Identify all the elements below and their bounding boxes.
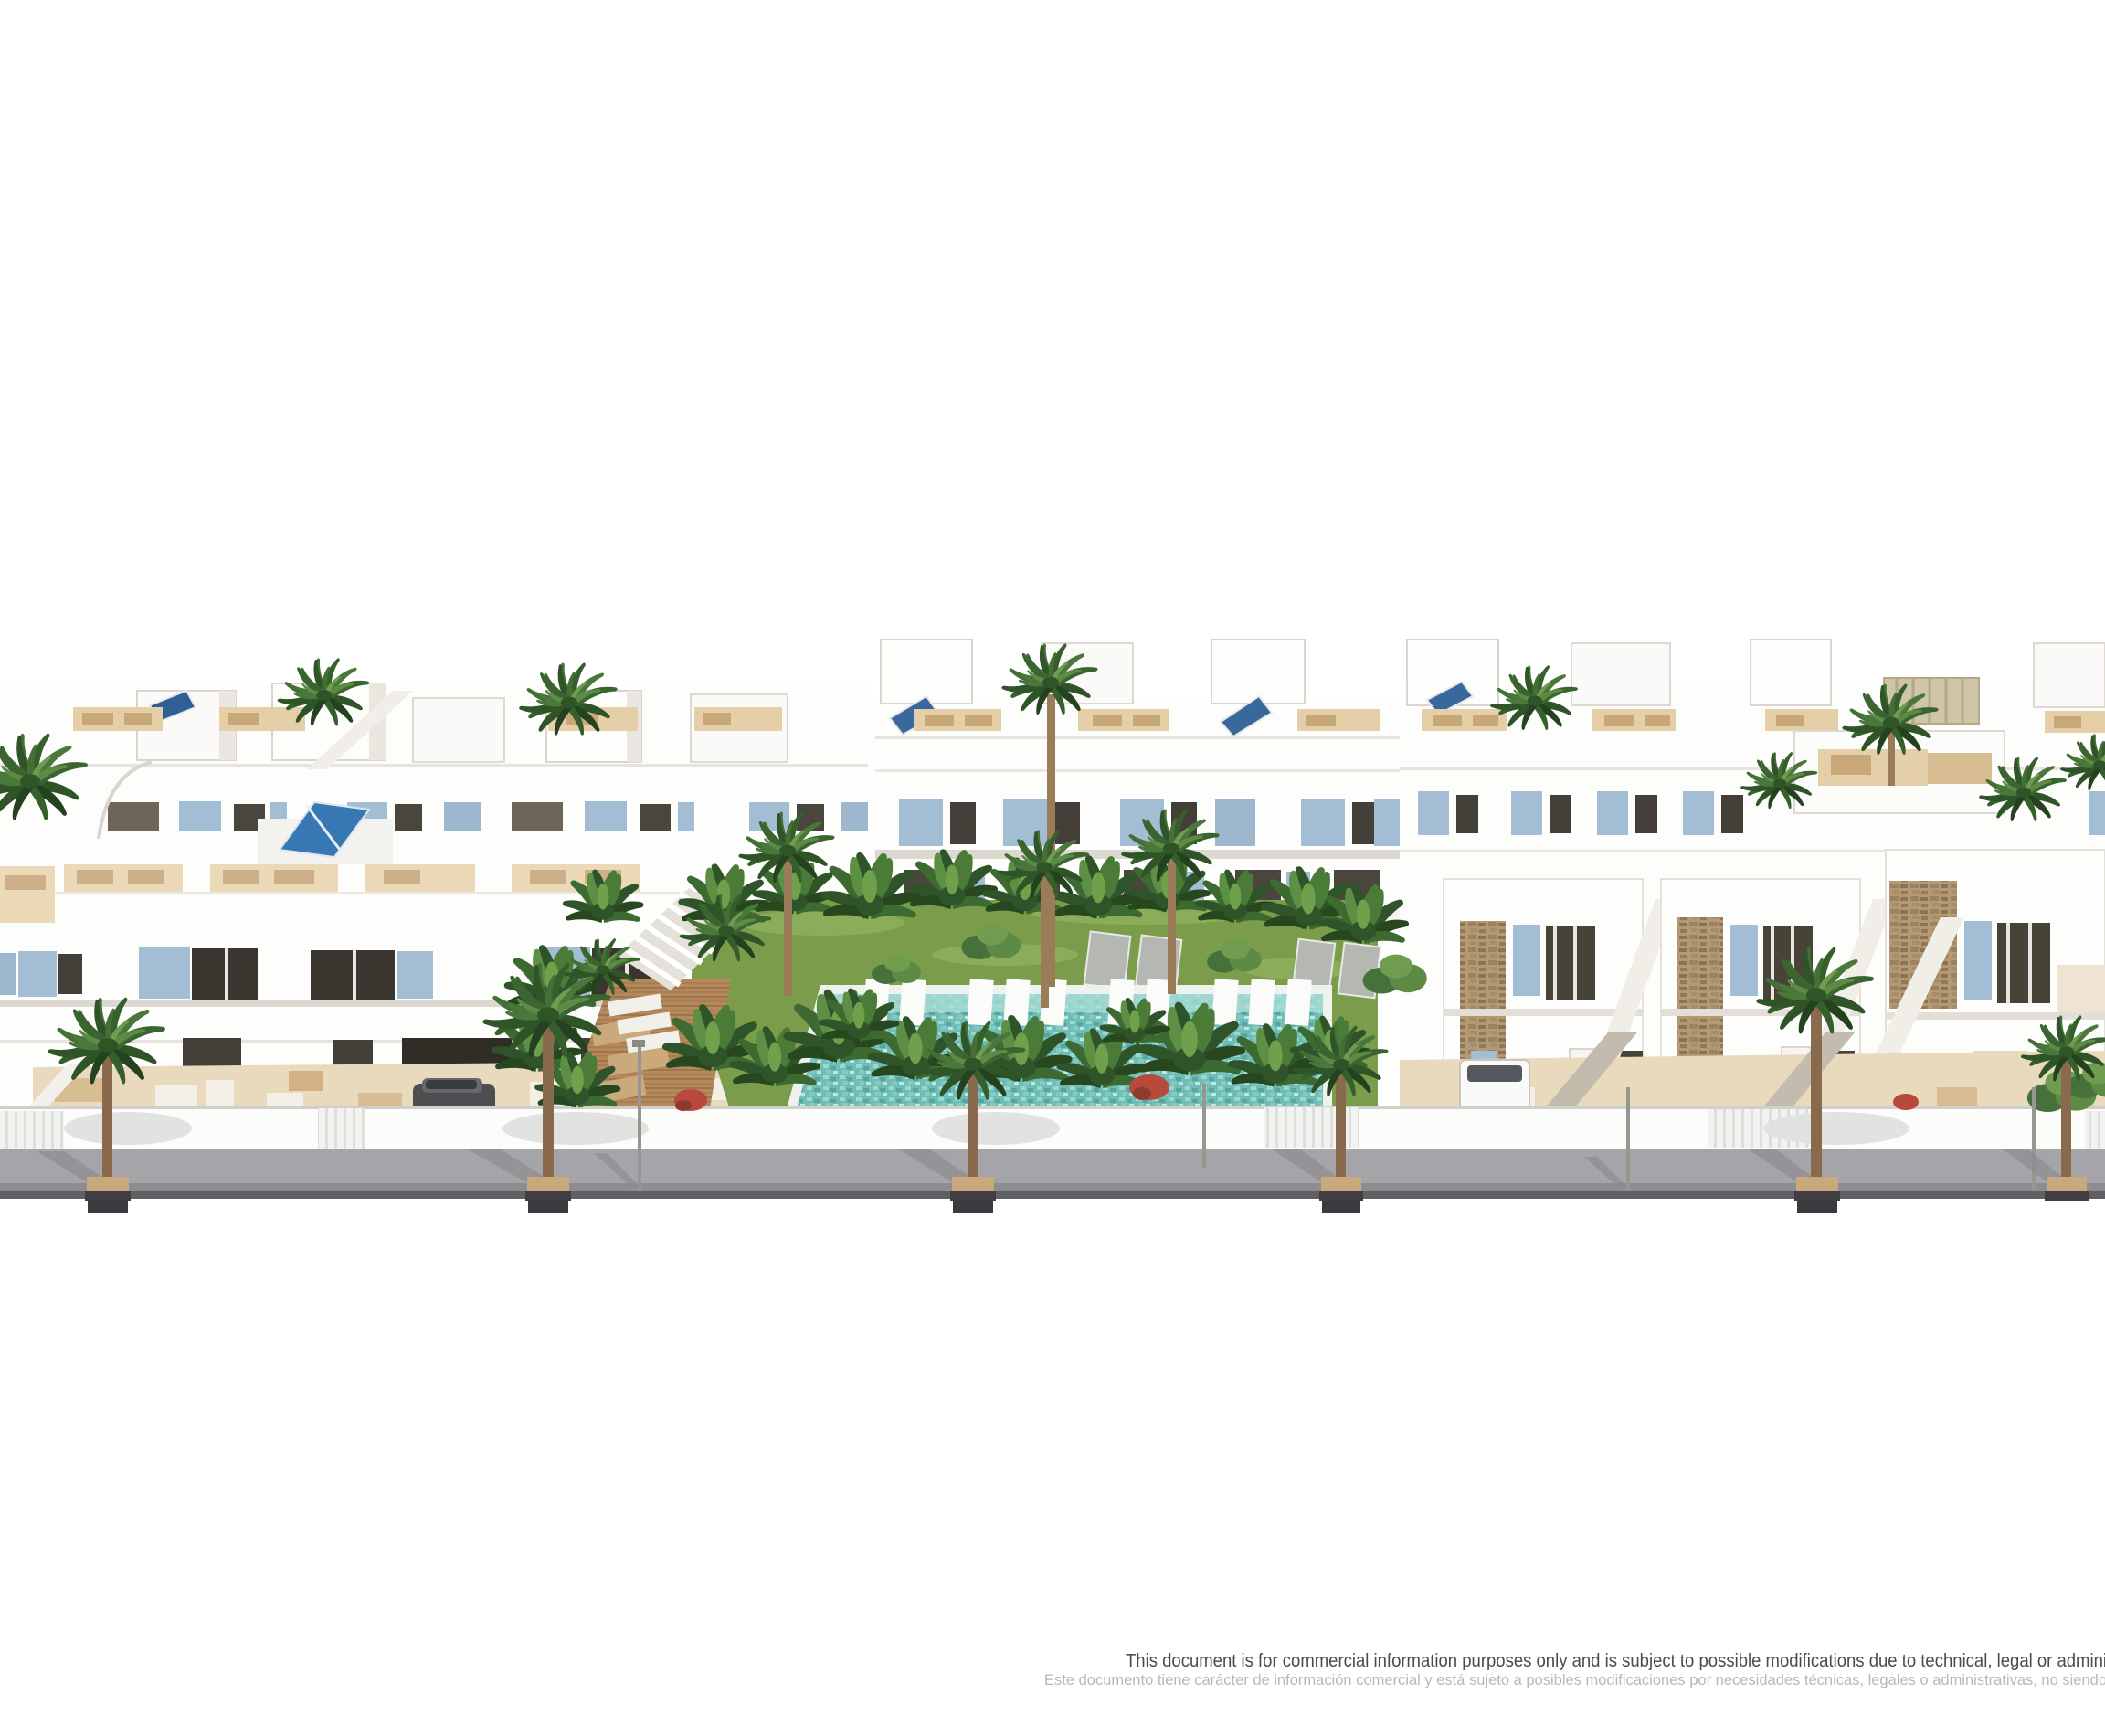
svg-text:Este documento tiene carácter: Este documento tiene carácter de informa… xyxy=(1044,1672,2105,1688)
svg-text:This document is for commercia: This document is for commercial informat… xyxy=(1126,1651,2105,1671)
